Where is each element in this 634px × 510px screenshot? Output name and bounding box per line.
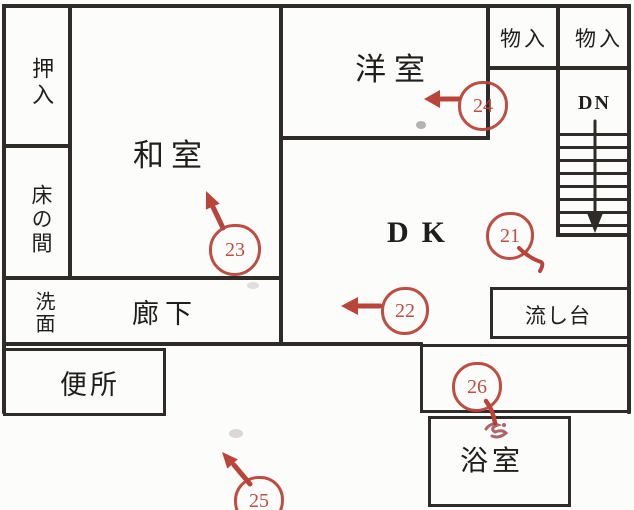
camera-marker-22: 22 — [381, 287, 429, 335]
marker-tail-21 — [513, 244, 549, 276]
room-label-washitsu: 和室 — [133, 140, 209, 173]
room-label-yoshitsu: 洋室 — [355, 54, 433, 87]
wall-corridor-bottom — [2, 342, 423, 346]
room-label-monoire-1: 物入 — [500, 28, 548, 50]
room-label-oshiire: 押入 — [30, 57, 53, 109]
marker-number: 26 — [467, 376, 487, 399]
scan-smudge — [229, 429, 243, 438]
scan-smudge — [416, 121, 426, 129]
wall-oshiire-bottom — [2, 144, 72, 148]
marker-number: 25 — [249, 490, 269, 510]
camera-arrow-23 — [194, 180, 240, 236]
stairs-down-arrow-icon — [586, 117, 606, 237]
wall-yoshitsu-bottom — [281, 136, 490, 140]
wall-top — [2, 4, 631, 8]
camera-arrow-24 — [416, 86, 462, 112]
floor-plan: 押入 床の間 和室 洋室 物入 物入 DN DK 洗面 廊下 便所 流し台 浴室… — [0, 0, 634, 510]
room-label-roka: 廊下 — [132, 300, 198, 328]
room-label-dk: DK — [387, 217, 458, 249]
room-label-monoire-2: 物入 — [575, 28, 623, 50]
room-label-benjo: 便所 — [60, 371, 120, 399]
wall-closet-column-right — [68, 6, 72, 280]
wall-washitsu-bottom — [2, 276, 283, 280]
camera-marker-24: 24 — [458, 81, 508, 131]
marker-number: 23 — [225, 239, 245, 262]
room-label-tokonoma: 床の間 — [30, 184, 52, 256]
room-utility-box — [420, 344, 631, 413]
wall-center-vertical — [279, 6, 283, 346]
camera-arrow-22 — [336, 294, 386, 320]
marker-number: 24 — [473, 95, 493, 118]
room-label-dn: DN — [578, 93, 611, 114]
room-label-senmen: 洗面 — [32, 291, 53, 335]
room-label-nagashidai: 流し台 — [525, 305, 591, 327]
marker-number: 22 — [395, 300, 415, 323]
room-label-yokushitsu: 浴室 — [460, 447, 524, 476]
camera-arrow-25 — [210, 441, 256, 489]
scan-smudge — [247, 282, 259, 289]
red-smudge-mark — [478, 417, 514, 443]
